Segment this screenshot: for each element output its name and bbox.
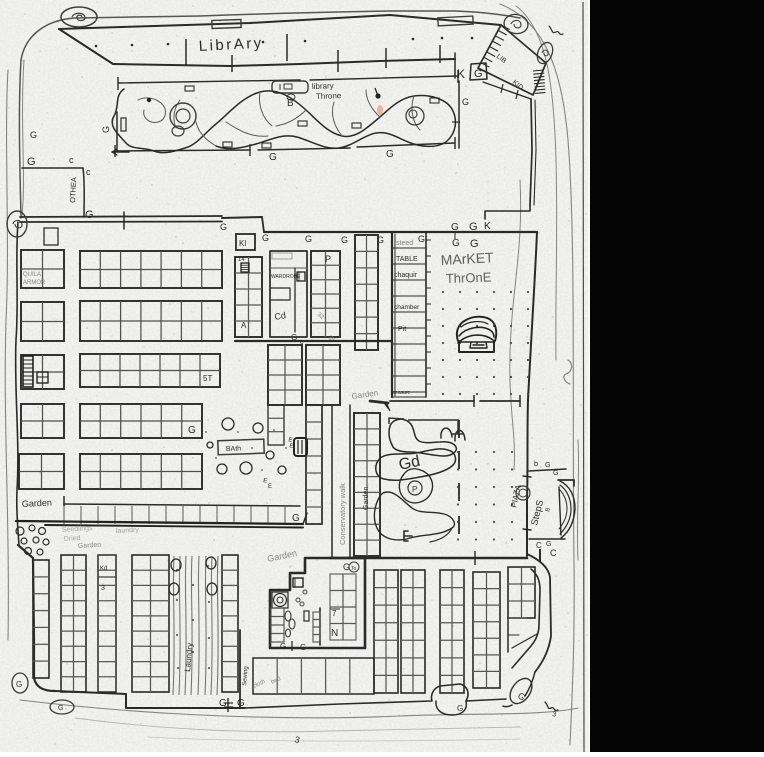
svg-text:Pit: Pit	[398, 326, 406, 333]
svg-text:To: To	[351, 566, 357, 572]
svg-text:Cd: Cd	[274, 310, 287, 322]
svg-text:G: G	[545, 462, 550, 469]
svg-text:Garden: Garden	[78, 542, 102, 550]
svg-text:G: G	[469, 221, 478, 233]
svg-text:Conservatory walk: Conservatory walk	[338, 483, 347, 545]
svg-text:G: G	[16, 680, 22, 689]
svg-text:G: G	[269, 152, 277, 163]
svg-text:G: G	[300, 643, 306, 652]
svg-text:treasure: treasure	[392, 390, 411, 396]
svg-text:G: G	[291, 333, 297, 342]
svg-text:G: G	[546, 541, 551, 548]
svg-text:3: 3	[101, 585, 105, 592]
svg-text:G: G	[30, 130, 37, 140]
svg-text:Kd: Kd	[100, 566, 107, 572]
svg-text:14: 14	[238, 257, 245, 263]
svg-text:G: G	[386, 149, 394, 160]
svg-text:G: G	[470, 238, 479, 250]
svg-text:G: G	[58, 705, 63, 712]
svg-text:LibrAry: LibrAry	[198, 35, 264, 55]
svg-text:ThrOnE: ThrOnE	[446, 269, 492, 286]
svg-text:G: G	[377, 235, 384, 245]
svg-text:chamber: chamber	[394, 304, 420, 311]
svg-text:G: G	[305, 234, 312, 244]
svg-text:Dried: Dried	[64, 535, 81, 543]
svg-text:5T: 5T	[203, 374, 212, 383]
svg-text:library: library	[312, 81, 334, 91]
svg-text:P: P	[325, 254, 331, 264]
svg-text:Garden: Garden	[22, 497, 53, 509]
svg-text:G: G	[262, 233, 269, 243]
svg-text:OTHEA: OTHEA	[68, 177, 78, 203]
svg-text:G: G	[341, 235, 348, 245]
svg-text:G: G	[280, 642, 286, 651]
svg-text:K: K	[484, 221, 491, 232]
svg-text:G: G	[457, 704, 463, 713]
svg-text:Throne: Throne	[316, 91, 342, 101]
svg-text:MArKET: MArKET	[440, 249, 494, 268]
svg-text:C: C	[550, 548, 557, 558]
svg-text:G: G	[27, 156, 36, 168]
svg-text:G: G	[237, 698, 245, 709]
svg-text:N: N	[331, 628, 338, 639]
svg-text:G: G	[474, 68, 483, 80]
svg-text:C: C	[536, 541, 542, 550]
svg-text:G: G	[553, 470, 558, 477]
svg-text:P: P	[412, 485, 417, 494]
svg-text:G: G	[85, 209, 94, 221]
svg-text:chaquir: chaquir	[394, 272, 418, 279]
svg-text:c: c	[69, 155, 74, 165]
svg-text:G: G	[292, 513, 300, 524]
svg-text:Kl: Kl	[239, 239, 246, 248]
svg-text:G: G	[451, 222, 459, 233]
svg-text:b: b	[534, 461, 538, 468]
svg-text:Garden: Garden	[363, 487, 370, 510]
svg-text:ARMOR: ARMOR	[23, 280, 46, 286]
svg-text:A: A	[241, 321, 247, 330]
svg-text:G: G	[188, 425, 196, 436]
svg-text:c: c	[86, 167, 91, 177]
svg-text:steed: steed	[396, 240, 413, 247]
svg-text:BAth: BAth	[226, 445, 242, 453]
svg-text:QUILA: QUILA	[23, 272, 41, 278]
svg-text:E: E	[268, 484, 272, 490]
svg-text:G: G	[101, 126, 111, 133]
svg-text:laundry: laundry	[116, 527, 140, 535]
svg-text:TABLE: TABLE	[396, 256, 418, 263]
svg-text:G: G	[418, 234, 425, 244]
svg-text:G: G	[462, 97, 469, 107]
svg-text:7: 7	[332, 609, 337, 618]
svg-text:G: G	[452, 238, 460, 249]
svg-text:G: G	[220, 222, 227, 232]
